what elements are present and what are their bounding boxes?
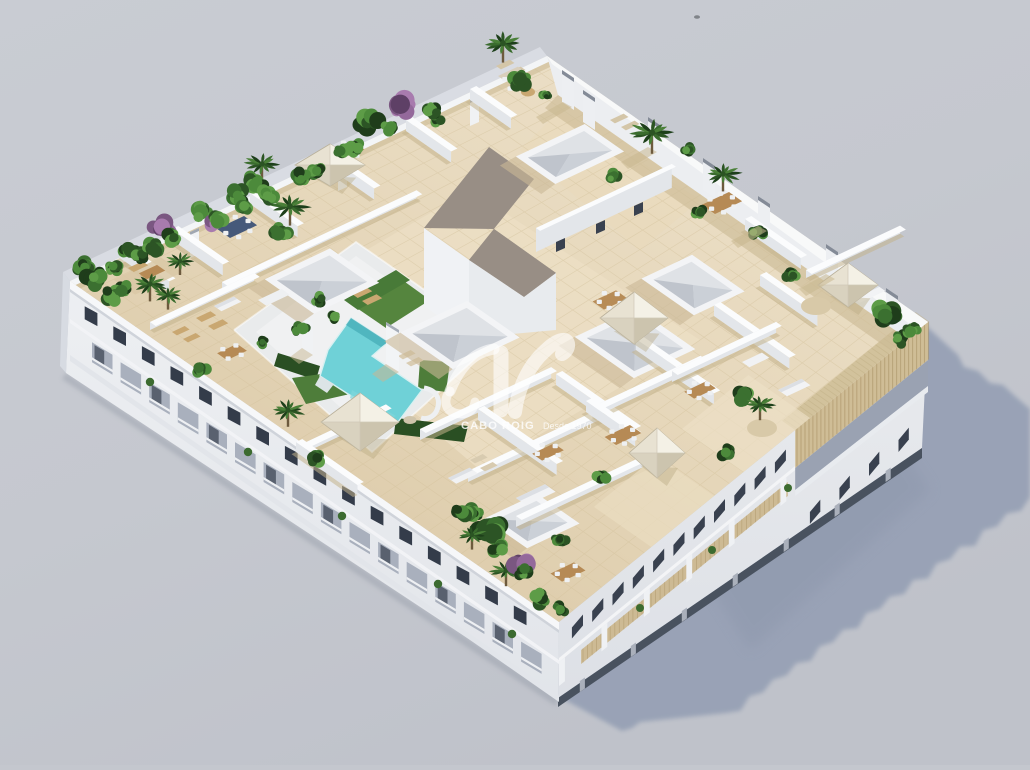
svg-text:Desde 1970: Desde 1970	[543, 421, 592, 431]
svg-text:CABO ROIG: CABO ROIG	[461, 420, 535, 432]
